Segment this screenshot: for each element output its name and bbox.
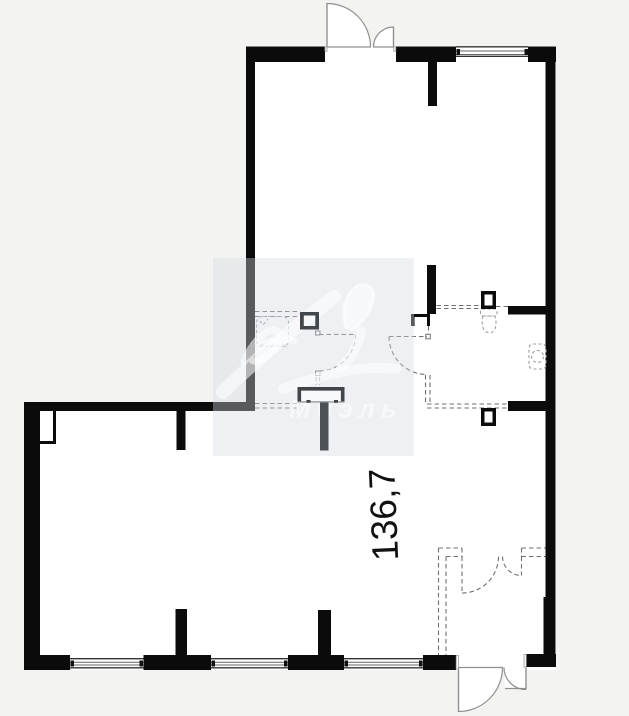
svg-text:136,7: 136,7 [361, 467, 406, 561]
